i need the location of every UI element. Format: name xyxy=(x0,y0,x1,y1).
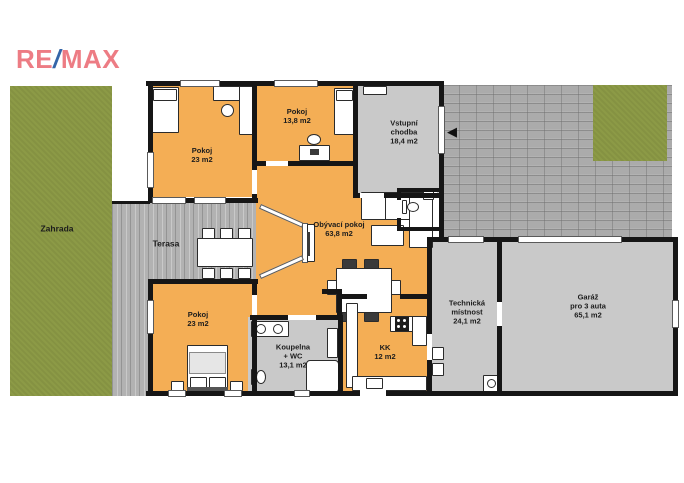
room-label-zahrada: Zahrada xyxy=(40,225,73,234)
label-line: KK xyxy=(374,343,395,352)
wall xyxy=(427,237,432,396)
window xyxy=(448,236,484,243)
room-label-pokoj-top: Pokoj 23 m2 xyxy=(191,146,212,164)
dining-chair xyxy=(391,280,401,295)
window xyxy=(180,80,220,87)
tv xyxy=(307,232,310,256)
label-line: 23 m2 xyxy=(191,155,212,164)
terrace-chair xyxy=(238,268,251,279)
terrace-chair xyxy=(220,268,233,279)
label-line: 18,4 m2 xyxy=(390,137,418,146)
room-label-obyvaci: Obývací pokoj 63,8 m2 xyxy=(313,220,364,238)
label-line: 12 m2 xyxy=(374,352,395,361)
label-line: Pokoj xyxy=(191,146,212,155)
bathtub xyxy=(306,360,339,393)
floor-plan: Zahrada Terasa Pokoj 23 m2 Pokoj 13,8 m2… xyxy=(0,0,684,483)
wall xyxy=(397,227,439,231)
door-gap xyxy=(360,390,386,397)
sink xyxy=(256,324,266,334)
label-line: + WC xyxy=(276,352,310,361)
dining-table xyxy=(336,268,392,313)
label-line: Pokoj xyxy=(187,310,208,319)
label-line: Technická xyxy=(449,299,485,308)
wall xyxy=(397,188,439,192)
label-line: 63,8 m2 xyxy=(313,229,364,238)
window xyxy=(147,300,154,334)
terrace-table xyxy=(197,238,253,267)
chair xyxy=(221,104,234,117)
room-label-koupelna: Koupelna + WC 13,1 m2 xyxy=(276,343,310,370)
door-gap xyxy=(397,200,401,218)
label-line: 24,1 m2 xyxy=(449,317,485,326)
logo-max: MAX xyxy=(61,44,120,74)
garden-area xyxy=(10,86,112,396)
door-gap xyxy=(497,302,502,326)
window xyxy=(152,197,186,204)
label-line: 13,1 m2 xyxy=(276,361,310,370)
room-label-technicka: Technická místnost 24,1 m2 xyxy=(449,299,485,326)
label-line: Zahrada xyxy=(40,225,73,234)
boiler xyxy=(432,347,444,360)
window xyxy=(672,300,679,328)
label-line: Koupelna xyxy=(276,343,310,352)
entrance-arrow-icon: ◀ xyxy=(447,125,457,138)
window xyxy=(147,152,154,188)
washing-machine-door xyxy=(487,379,496,388)
window xyxy=(194,197,226,204)
computer xyxy=(310,149,319,155)
wall xyxy=(338,315,343,396)
wall xyxy=(353,81,358,198)
fridge xyxy=(412,316,427,346)
wall xyxy=(337,294,369,299)
pillow xyxy=(153,89,177,101)
door-gap xyxy=(288,315,316,320)
door-gap xyxy=(252,170,257,194)
terrace-strip xyxy=(112,281,150,396)
blanket xyxy=(189,352,226,374)
stove xyxy=(395,317,409,331)
room-label-kk: KK 12 m2 xyxy=(374,343,395,361)
desk xyxy=(239,86,253,135)
wall xyxy=(148,279,258,284)
sink xyxy=(273,324,283,334)
label-line: Vstupní xyxy=(390,119,418,128)
room-label-chodba: Vstupní chodba 18,4 m2 xyxy=(390,119,418,146)
burner xyxy=(403,325,406,328)
label-line: pro 3 auta xyxy=(570,302,606,311)
room-label-garaz: Garáž pro 3 auta 65,1 m2 xyxy=(570,293,606,320)
label-line: chodba xyxy=(390,128,418,137)
lawn-patch xyxy=(593,85,667,161)
burner xyxy=(397,325,400,328)
garage-door xyxy=(518,236,622,243)
toilet xyxy=(256,370,266,384)
pillow xyxy=(336,90,353,101)
door-gap xyxy=(367,294,381,299)
burner xyxy=(403,319,406,322)
label-line: Pokoj xyxy=(283,107,311,116)
wall xyxy=(112,201,150,204)
shower-cabinet xyxy=(327,328,338,358)
door-gap xyxy=(252,295,257,315)
window xyxy=(274,80,318,87)
room-label-pokoj-bottom: Pokoj 23 m2 xyxy=(187,310,208,328)
wall xyxy=(439,81,444,241)
kitchen-sink xyxy=(366,378,383,389)
label-line: Garáž xyxy=(570,293,606,302)
door-gap xyxy=(427,334,432,360)
boiler xyxy=(432,363,444,376)
label-line: 23 m2 xyxy=(187,319,208,328)
wall xyxy=(148,279,153,396)
window xyxy=(224,390,242,397)
room-label-pokoj-mid: Pokoj 13,8 m2 xyxy=(283,107,311,125)
label-line: Terasa xyxy=(153,240,180,249)
wardrobe xyxy=(363,86,387,95)
door-gap xyxy=(266,161,288,166)
logo-re: RE xyxy=(16,44,53,74)
toilet xyxy=(407,202,419,212)
chair xyxy=(307,134,321,145)
entrance-door xyxy=(438,106,445,154)
window xyxy=(294,390,310,397)
window xyxy=(168,390,186,397)
label-line: 13,8 m2 xyxy=(283,116,311,125)
door-gap xyxy=(360,193,384,198)
terrace-chair xyxy=(202,268,215,279)
kitchen-counter xyxy=(352,376,427,391)
label-line: Obývací pokoj xyxy=(313,220,364,229)
room-label-terasa: Terasa xyxy=(153,240,180,249)
label-line: 65,1 m2 xyxy=(570,311,606,320)
label-line: místnost xyxy=(449,308,485,317)
logo-slash: / xyxy=(53,44,61,74)
burner xyxy=(397,319,400,322)
wall xyxy=(400,294,432,299)
remax-logo: RE/MAX xyxy=(16,44,120,75)
